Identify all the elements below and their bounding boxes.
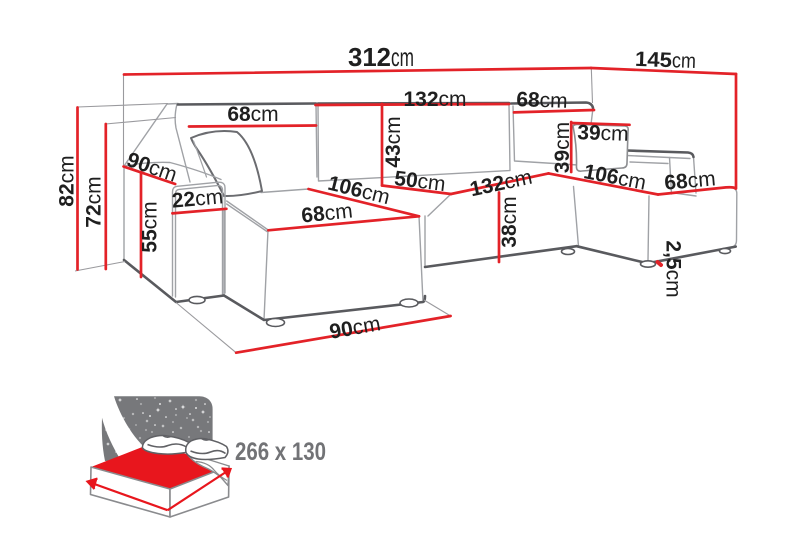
- svg-text:22cm: 22cm: [171, 185, 224, 212]
- svg-text:68cm: 68cm: [663, 167, 716, 194]
- svg-text:90cm: 90cm: [328, 312, 383, 344]
- svg-text:145cm: 145cm: [635, 48, 697, 73]
- svg-text:68cm: 68cm: [227, 103, 278, 126]
- svg-text:266 x 130: 266 x 130: [235, 438, 326, 466]
- svg-text:38cm: 38cm: [498, 196, 521, 247]
- svg-text:132cm: 132cm: [403, 88, 466, 111]
- svg-text:106cm: 106cm: [582, 160, 648, 195]
- svg-text:55cm: 55cm: [139, 201, 162, 252]
- svg-text:90cm: 90cm: [124, 148, 180, 186]
- svg-text:50cm: 50cm: [393, 167, 447, 196]
- svg-text:312cm: 312cm: [348, 42, 414, 72]
- svg-text:39cm: 39cm: [577, 121, 629, 146]
- svg-text:68cm: 68cm: [516, 88, 568, 113]
- svg-text:39cm: 39cm: [551, 122, 574, 173]
- svg-text:43cm: 43cm: [382, 116, 405, 167]
- svg-text:72cm: 72cm: [83, 176, 106, 227]
- svg-text:82cm: 82cm: [56, 155, 79, 206]
- svg-text:2,5cm: 2,5cm: [662, 240, 685, 297]
- svg-text:132cm: 132cm: [468, 166, 534, 202]
